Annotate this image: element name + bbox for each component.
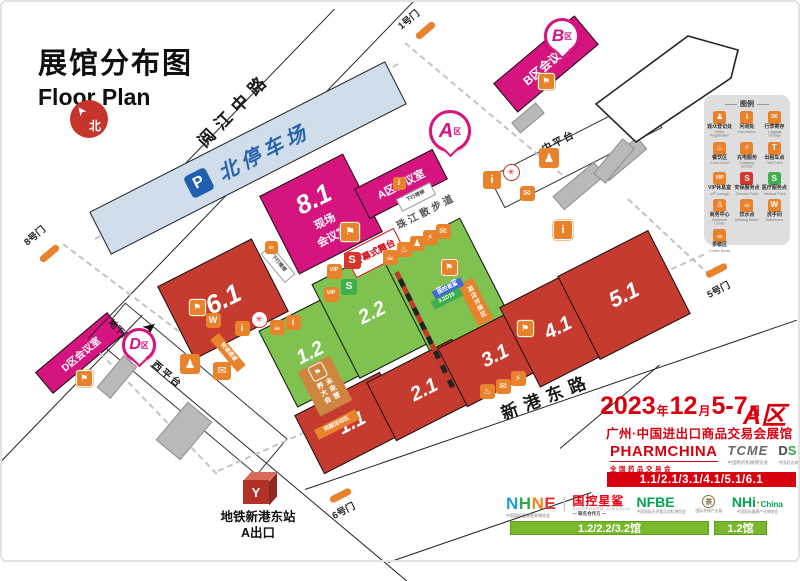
date-part: 2023 <box>600 394 656 419</box>
cafe-icon: ☕ <box>265 241 278 254</box>
date-part: 12 <box>670 394 698 419</box>
legend-item: i问询处Information <box>733 111 760 139</box>
metro-exit: A出口 <box>210 526 306 542</box>
nhne-subtitle: 中国国际健康营养博览会 <box>506 513 556 519</box>
tcme-subtitle: 中国制药机械博览会 <box>728 460 769 466</box>
washroom-icon: W <box>206 313 221 328</box>
host-icon: ⚑ <box>538 73 555 90</box>
zone-suffix: 区 <box>141 340 149 351</box>
visitor-registration-icon: ♟ <box>713 111 726 124</box>
legend-item: S医疗服务点Medical Point <box>761 172 788 195</box>
legend-label-en: Charging Service <box>735 161 760 169</box>
medical-point-icon: S <box>768 172 781 185</box>
host-icon: ⚑ <box>340 222 360 242</box>
compass-arrow: ➤ <box>72 103 89 120</box>
legend-item: W洗手间Washroom <box>761 199 788 227</box>
legend-label-en: Luggage Storage <box>762 131 787 139</box>
brand-separator: | <box>562 495 566 513</box>
guokong-subtitle-2: — 联名合作方 — <box>572 511 630 517</box>
brand-pharmchina: PHARMCHINA 全国药品交易会 <box>610 443 718 473</box>
nhne-logo: NHNE <box>506 495 556 512</box>
halls-bar-red: 1.1/2.1/3.1/4.1/5.1/6.1 <box>607 472 796 487</box>
pharmchina-logo: PHARMCHINA <box>610 443 718 460</box>
compass-north-label: 北 <box>89 117 101 134</box>
legend-grid: ♟观众登记处Visitor Registrationi问询处Informatio… <box>706 111 788 253</box>
luggage-icon: ✉ <box>520 186 535 201</box>
vip-icon: VIP <box>324 287 339 302</box>
zone-suffix: 区 <box>564 31 572 42</box>
zone-balloon-D: D区 <box>122 328 156 362</box>
luggage-icon: ✉ <box>213 362 231 380</box>
metro-station-label: 地铁新港东站 A出口 <box>210 510 306 541</box>
zone-balloon-B: B区 <box>544 18 580 54</box>
legend-item: ☕茶歇区Coffee Break <box>706 229 733 252</box>
legend-panel: 图例 ♟观众登记处Visitor Registrationi问询处Informa… <box>704 95 790 245</box>
title-en: Floor Plan <box>38 84 193 111</box>
nhne-letter: N <box>532 494 545 513</box>
brand-nfbe: NFBE 中国国际天然食品饮料博览会 <box>636 495 685 515</box>
cafe-icon: ☕ <box>270 320 285 335</box>
legend-label-en: Information <box>735 130 760 134</box>
info-icon: i <box>483 171 501 189</box>
nhi-subtitle: 中国国际健康产业博览会 <box>732 510 783 515</box>
legend-label-en: Security Point <box>735 192 760 196</box>
legend-label-en: Food Court <box>707 161 732 165</box>
registration-icon: ♟ <box>180 354 200 374</box>
legend-label-en: Drinking Water <box>735 218 760 222</box>
legend-label-en: Medical Point <box>762 192 787 196</box>
zone-suffix: 区 <box>453 126 461 137</box>
halls-bar-green-wide: 1.2/2.2/3.2馆 <box>510 521 709 535</box>
host-icon: ⚑ <box>441 259 458 276</box>
nfbe-logo: NFBE <box>636 495 685 509</box>
legend-item: T出租车点Taxi Point <box>761 142 788 170</box>
date-part: 年 <box>656 404 670 419</box>
legend-label-en: Washroom <box>762 218 787 222</box>
nhne-letter: H <box>519 494 532 513</box>
brand-tea-expo: 茶 国际茶咖产业展 <box>692 495 726 514</box>
zone-letter: A <box>439 120 453 143</box>
host-icon: ⚑ <box>517 320 534 337</box>
legend-item: ✉行李寄存Luggage Storage <box>761 111 788 139</box>
drinking-water-icon: ☕ <box>740 199 753 212</box>
exhibition-date: 2023年12月5-7日 <box>600 394 762 419</box>
security-point-icon: S <box>740 172 753 185</box>
legend-item: S安保服务点Security Point <box>733 172 760 195</box>
security-icon: S <box>344 252 361 269</box>
brand-tcme: TCME 中国制药机械博览会 <box>728 443 769 466</box>
guokong-logo: 国控星鲨 <box>572 495 630 507</box>
info-icon: i <box>235 321 250 336</box>
page-title: 展馆分布图 Floor Plan <box>38 40 193 111</box>
charging-icon: ⚡ <box>511 371 526 386</box>
registration-icon: ♟ <box>539 148 559 168</box>
halls-bar-green-narrow: 1.2馆 <box>714 521 767 535</box>
ds-logo: DS <box>778 443 800 458</box>
legend-label-en: Taxi Point <box>762 161 787 165</box>
vip-lounge-icon: VIP <box>713 172 726 185</box>
medical-icon: S <box>341 279 357 295</box>
brand-row-2: NHNE 中国国际健康营养博览会 | 国控星鲨 SINOPHARM XINGSH… <box>506 495 798 519</box>
business-center-icon: ♙ <box>713 199 726 212</box>
tea-logo: 茶 <box>702 495 715 508</box>
legend-title: 图例 <box>706 99 788 109</box>
metro-station-icon: Y <box>243 480 269 504</box>
title-zh: 展馆分布图 <box>38 40 193 82</box>
info-icon: i <box>286 315 301 330</box>
legend-label-en: Visitor Registration <box>707 131 732 139</box>
metro-station-name: 地铁新港东站 <box>210 510 306 526</box>
brand-row-1: PHARMCHINA 全国药品交易会 TCME 中国制药机械博览会 DS 中国药… <box>610 443 800 473</box>
zone-balloon-A: A区 <box>429 110 471 152</box>
info-icon: i <box>553 220 573 240</box>
legend-label-en: Business Center <box>707 218 732 226</box>
information-icon: i <box>740 111 753 124</box>
brand-nhi-china: NHi·China 中国国际健康产业博览会 <box>732 495 783 515</box>
legend-item: ♙商务中心Business Center <box>706 199 733 227</box>
brand-nhne: NHNE 中国国际健康营养博览会 <box>506 495 556 519</box>
ds-subtitle: 中国药店商品交易会 <box>778 460 800 466</box>
food-court-icon: ♨ <box>713 142 726 155</box>
luggage-icon: ✉ <box>436 224 451 239</box>
venue-name: 广州·中国进出口商品交易会展馆 <box>606 423 793 442</box>
tcme-logo: TCME <box>728 443 769 458</box>
taxi-point-icon: T <box>768 142 781 155</box>
nfbe-subtitle: 中国国际天然食品饮料博览会 <box>636 510 685 515</box>
legend-item: VIPVIP休息室VIP Lounge <box>706 172 733 195</box>
north-compass-icon: ➤ 北 <box>70 100 108 138</box>
nhi-logo: NHi·China <box>732 495 783 509</box>
charging-service-icon: ⚡ <box>740 142 753 155</box>
date-part: 月 <box>697 404 711 419</box>
tea-subtitle: 国际茶咖产业展 <box>692 509 726 514</box>
emblem-icon: ✳ <box>251 311 268 328</box>
washroom-icon: W <box>768 199 781 212</box>
legend-item: ♟观众登记处Visitor Registration <box>706 111 733 139</box>
luggage-icon: ✉ <box>496 379 511 394</box>
legend-label-en: VIP Lounge <box>707 192 732 196</box>
legend-item: ⚡充电服务Charging Service <box>733 142 760 170</box>
info-icon: i <box>393 177 406 190</box>
nhne-letter: E <box>544 494 556 513</box>
legend-item: ☕饮水点Drinking Water <box>733 199 760 227</box>
legend-item: ♨餐饮区Food Court <box>706 142 733 170</box>
cafe-icon: ☕ <box>383 250 398 265</box>
emblem-icon: ✳ <box>503 164 520 181</box>
brand-guokong-xingsha: 国控星鲨 SINOPHARM XINGSHA — 联名合作方 — <box>572 495 630 517</box>
host-icon: ⚑ <box>189 299 206 316</box>
brand-ds: DS 中国药店商品交易会 <box>778 443 800 466</box>
luggage-storage-icon: ✉ <box>768 111 781 124</box>
food-icon: ♨ <box>480 384 495 399</box>
coffee-break-icon: ☕ <box>713 229 726 242</box>
host-icon: ⚑ <box>76 370 93 387</box>
metro-logo: Y <box>243 480 269 504</box>
nhne-letter: N <box>506 494 519 513</box>
parking-icon: P <box>183 167 215 199</box>
vip-icon: VIP <box>327 264 342 279</box>
legend-label-en: Coffee Break <box>707 249 732 253</box>
